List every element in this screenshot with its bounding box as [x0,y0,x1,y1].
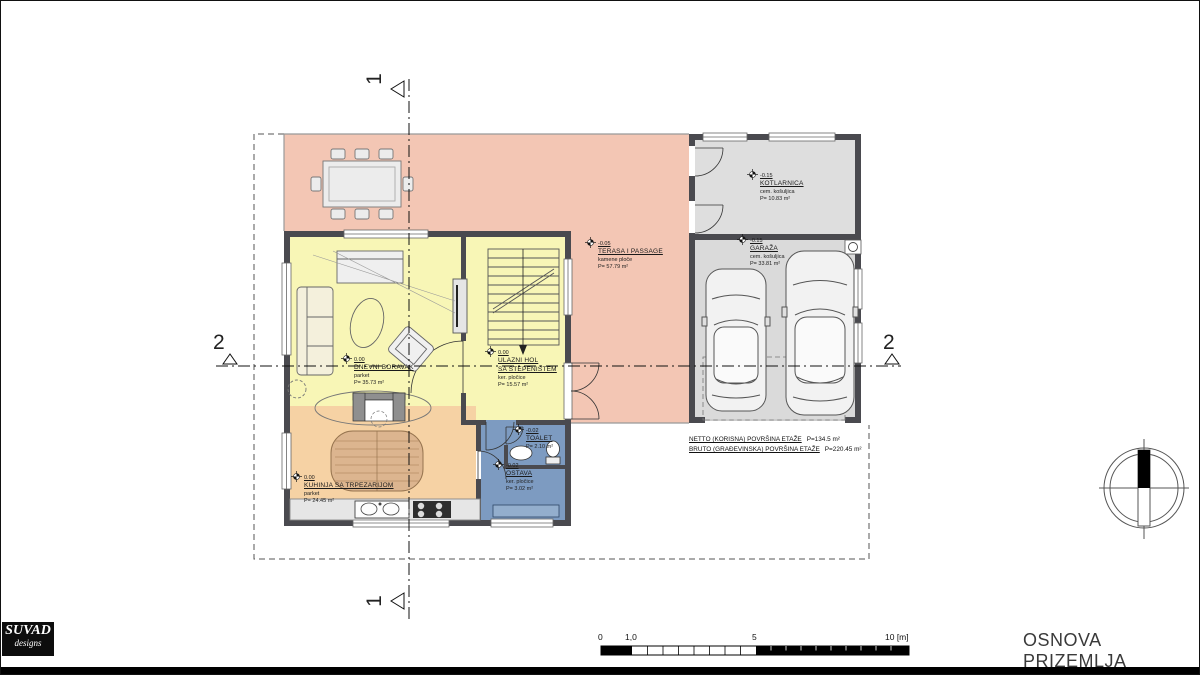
floor-plan-sheet: -0.05 TERASA I PASSAGE kamene ploče P= 5… [0,0,1200,675]
elevation-marker-icon [291,471,302,482]
plan-linework [1,1,1200,675]
suvad-designs-logo: SUVAD designs [2,622,54,656]
room-label-dnevni: 0.00 DNEVNI BORAVAK parket P= 35.73 m² [341,353,414,388]
room-label-hol: 0.00 ULAZNI HOL SA STEPENIŠTEM ker. ploč… [485,346,557,389]
north-symbol [1099,439,1189,539]
room-label-garaza: -0.15 GARAŽA cem. košuljica P= 33.81 m² [737,234,785,269]
sheet-title: OSNOVA PRIZEMLJA [1023,630,1199,672]
scale-tick-10: 10 [m] [885,632,909,642]
terrace-dining-set [311,149,413,219]
scale-bar [601,646,909,655]
room-label-ostava: -0.02 OSTAVA ker. pločice P= 3.02 m² [493,459,534,494]
section-marker-2-right: 2 [883,331,895,355]
elevation-marker-icon [747,169,758,180]
area-summary: NETTO (KORISNA) POVRŠINA ETAŽEP=134.5 m²… [689,435,862,456]
staircase [488,249,559,355]
car-icon [702,269,770,411]
elevation-marker-icon [493,459,504,470]
scale-tick-0: 0 [598,632,603,642]
room-label-terasa: -0.05 TERASA I PASSAGE kamene ploče P= 5… [585,237,663,272]
room-label-kuhinja: 0.00 KUHINJA SA TRPEZARIJOM parket P= 24… [291,471,394,506]
section-marker-1-bottom: 1 [363,595,387,607]
section-marker-1-top: 1 [363,73,387,85]
elevation-marker-icon [513,424,524,435]
room-label-kotlarnica: -0.15 KOTLARNICA cem. košuljica P= 10.83… [747,169,804,204]
car-icon [782,251,858,415]
bottom-border-bar [1,667,1200,674]
fireplace [315,391,431,427]
section-marker-2-left: 2 [213,331,225,355]
elevation-marker-icon [485,346,496,357]
elevation-marker-icon [737,234,748,245]
scale-tick-1: 1,0 [625,632,637,642]
logo-name: SUVAD [2,622,54,639]
elevation-marker-icon [341,353,352,364]
room-label-toalet: -0.02 TOALET P= 2.10 m² [513,424,553,451]
garage-detail [845,240,861,254]
elevation-marker-icon [585,237,596,248]
scale-tick-5: 5 [752,632,757,642]
logo-sub: designs [2,639,54,648]
